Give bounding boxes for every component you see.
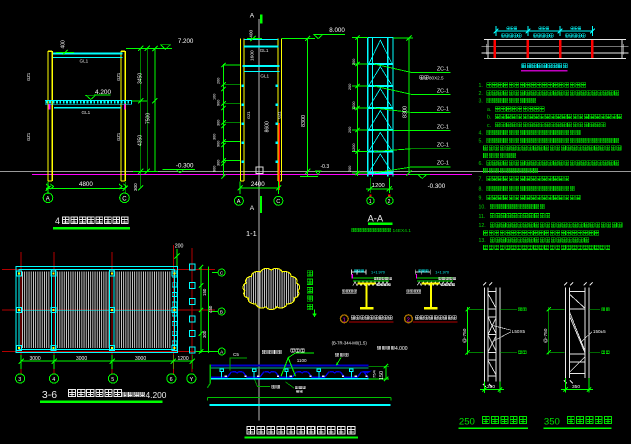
- svg-text:GL1: GL1: [80, 59, 89, 64]
- svg-text:8600: 8600: [265, 121, 271, 132]
- svg-text:4350: 4350: [138, 135, 144, 146]
- svg-text:100: 100: [213, 94, 217, 100]
- svg-text:GL1: GL1: [260, 48, 269, 53]
- svg-text:1.: 1.: [479, 83, 483, 89]
- svg-text:1200: 1200: [372, 183, 385, 189]
- svg-text:A: A: [250, 205, 255, 212]
- svg-text:C5: C5: [233, 352, 239, 357]
- svg-text:4: 4: [55, 216, 60, 226]
- svg-text:GZ1: GZ1: [26, 132, 31, 141]
- svg-text:300: 300: [217, 160, 221, 166]
- svg-text:150: 150: [202, 288, 207, 296]
- svg-text:900: 900: [217, 141, 221, 147]
- svg-text:@-750: @-750: [462, 328, 468, 343]
- svg-text:10.: 10.: [479, 205, 486, 211]
- svg-text:2.: 2.: [479, 91, 483, 97]
- svg-text:150±5: 150±5: [593, 329, 606, 334]
- svg-text:200: 200: [348, 166, 352, 172]
- svg-text:200: 200: [352, 59, 356, 65]
- svg-text:C: C: [276, 199, 280, 205]
- svg-text:A: A: [46, 196, 50, 202]
- svg-text:8.000: 8.000: [329, 27, 345, 34]
- svg-text:5: 5: [111, 377, 114, 383]
- svg-text:GZ1: GZ1: [116, 132, 121, 141]
- svg-text:ZC-1: ZC-1: [437, 106, 449, 112]
- svg-text:3450: 3450: [138, 73, 144, 84]
- svg-text:7.200: 7.200: [178, 38, 194, 45]
- svg-text:ZC-1: ZC-1: [437, 124, 449, 130]
- svg-text:12.: 12.: [479, 223, 486, 229]
- svg-text:c.: c.: [487, 123, 491, 129]
- svg-text:Y: Y: [190, 377, 194, 383]
- svg-text:-0.300: -0.300: [176, 163, 194, 170]
- svg-text:C: C: [122, 196, 127, 202]
- svg-text:2: 2: [388, 199, 391, 205]
- svg-text:1200: 1200: [352, 144, 356, 152]
- svg-text:3000: 3000: [30, 356, 41, 362]
- svg-text:ZC-1: ZC-1: [437, 88, 449, 94]
- svg-text:7500: 7500: [146, 113, 152, 124]
- svg-text:1200: 1200: [178, 356, 189, 362]
- svg-text:1-1: 1-1: [246, 229, 257, 238]
- svg-text:6.: 6.: [479, 161, 483, 167]
- svg-text:7.: 7.: [479, 177, 483, 183]
- svg-text:b.: b.: [487, 115, 491, 121]
- svg-text:2400: 2400: [251, 181, 265, 188]
- svg-text:1: 1: [369, 199, 372, 205]
- svg-text:A-A: A-A: [368, 213, 384, 224]
- svg-text:300: 300: [213, 134, 217, 140]
- svg-text:GZ1: GZ1: [116, 72, 121, 81]
- svg-text:4800: 4800: [79, 181, 93, 188]
- svg-text:200: 200: [348, 127, 352, 133]
- svg-text:400: 400: [248, 29, 254, 37]
- svg-text:(B-7R-344-M0(1.5): (B-7R-344-M0(1.5): [332, 341, 368, 346]
- svg-text:a.: a.: [487, 107, 491, 113]
- svg-text:1200: 1200: [352, 102, 356, 110]
- svg-text:3: 3: [18, 377, 21, 383]
- svg-text:8.: 8.: [479, 187, 483, 193]
- svg-text:B: B: [220, 310, 223, 315]
- svg-text:200: 200: [348, 84, 352, 90]
- svg-text:400: 400: [61, 40, 67, 49]
- svg-text:1+1.970: 1+1.970: [371, 270, 385, 274]
- svg-text:ZC-1: ZC-1: [437, 66, 449, 72]
- svg-text:3-6: 3-6: [42, 389, 57, 401]
- svg-text:80X2.5: 80X2.5: [429, 76, 444, 81]
- svg-text:GZ1: GZ1: [276, 110, 281, 119]
- svg-text:A: A: [250, 13, 255, 20]
- svg-text:8300: 8300: [301, 115, 307, 127]
- svg-text:1: 1: [343, 317, 346, 323]
- svg-text:5.: 5.: [479, 139, 483, 145]
- svg-text:14EX4.1: 14EX4.1: [393, 228, 412, 234]
- svg-text:250: 250: [459, 417, 475, 428]
- svg-text:ZC-1: ZC-1: [437, 143, 449, 149]
- svg-text:300: 300: [217, 120, 221, 126]
- svg-text:8300: 8300: [403, 106, 409, 118]
- svg-text:-0.3: -0.3: [321, 164, 330, 170]
- svg-text:900: 900: [213, 166, 217, 172]
- svg-text:A: A: [237, 199, 241, 205]
- svg-text:3000: 3000: [135, 356, 146, 362]
- svg-text:150: 150: [379, 371, 385, 380]
- svg-text:L50X5: L50X5: [512, 329, 526, 334]
- svg-text:4.: 4.: [479, 131, 483, 137]
- svg-text:1600: 1600: [249, 50, 255, 61]
- svg-text:13.: 13.: [479, 238, 486, 244]
- svg-text:350: 350: [572, 384, 580, 390]
- svg-text:900: 900: [217, 100, 221, 106]
- svg-text:4.000: 4.000: [395, 346, 408, 352]
- svg-text:2: 2: [407, 317, 410, 323]
- svg-text:@-750: @-750: [543, 328, 549, 343]
- svg-text:9.: 9.: [479, 196, 483, 202]
- svg-text:6: 6: [170, 377, 173, 383]
- svg-text:3000: 3000: [76, 356, 87, 362]
- svg-text:-0.300: -0.300: [428, 183, 446, 190]
- svg-text:3.: 3.: [479, 99, 483, 105]
- svg-text:GL1: GL1: [260, 73, 269, 78]
- svg-text:200: 200: [217, 78, 221, 84]
- svg-text:1100: 1100: [297, 358, 307, 363]
- svg-text:4.200: 4.200: [146, 390, 167, 400]
- svg-text:200: 200: [175, 244, 184, 250]
- svg-text:300: 300: [133, 183, 138, 191]
- svg-text:1+1.970: 1+1.970: [435, 270, 449, 274]
- svg-text:300: 300: [202, 330, 207, 338]
- svg-text:GZ1: GZ1: [246, 110, 251, 119]
- svg-text:4: 4: [52, 377, 55, 383]
- svg-text:GZ1: GZ1: [26, 72, 31, 81]
- svg-text:250: 250: [487, 384, 495, 390]
- svg-text:350: 350: [544, 417, 560, 428]
- svg-text:11.: 11.: [479, 214, 486, 220]
- svg-text:GL1: GL1: [82, 110, 91, 115]
- svg-text:75/4: 75/4: [372, 369, 377, 378]
- svg-text:ZC-1: ZC-1: [437, 161, 449, 167]
